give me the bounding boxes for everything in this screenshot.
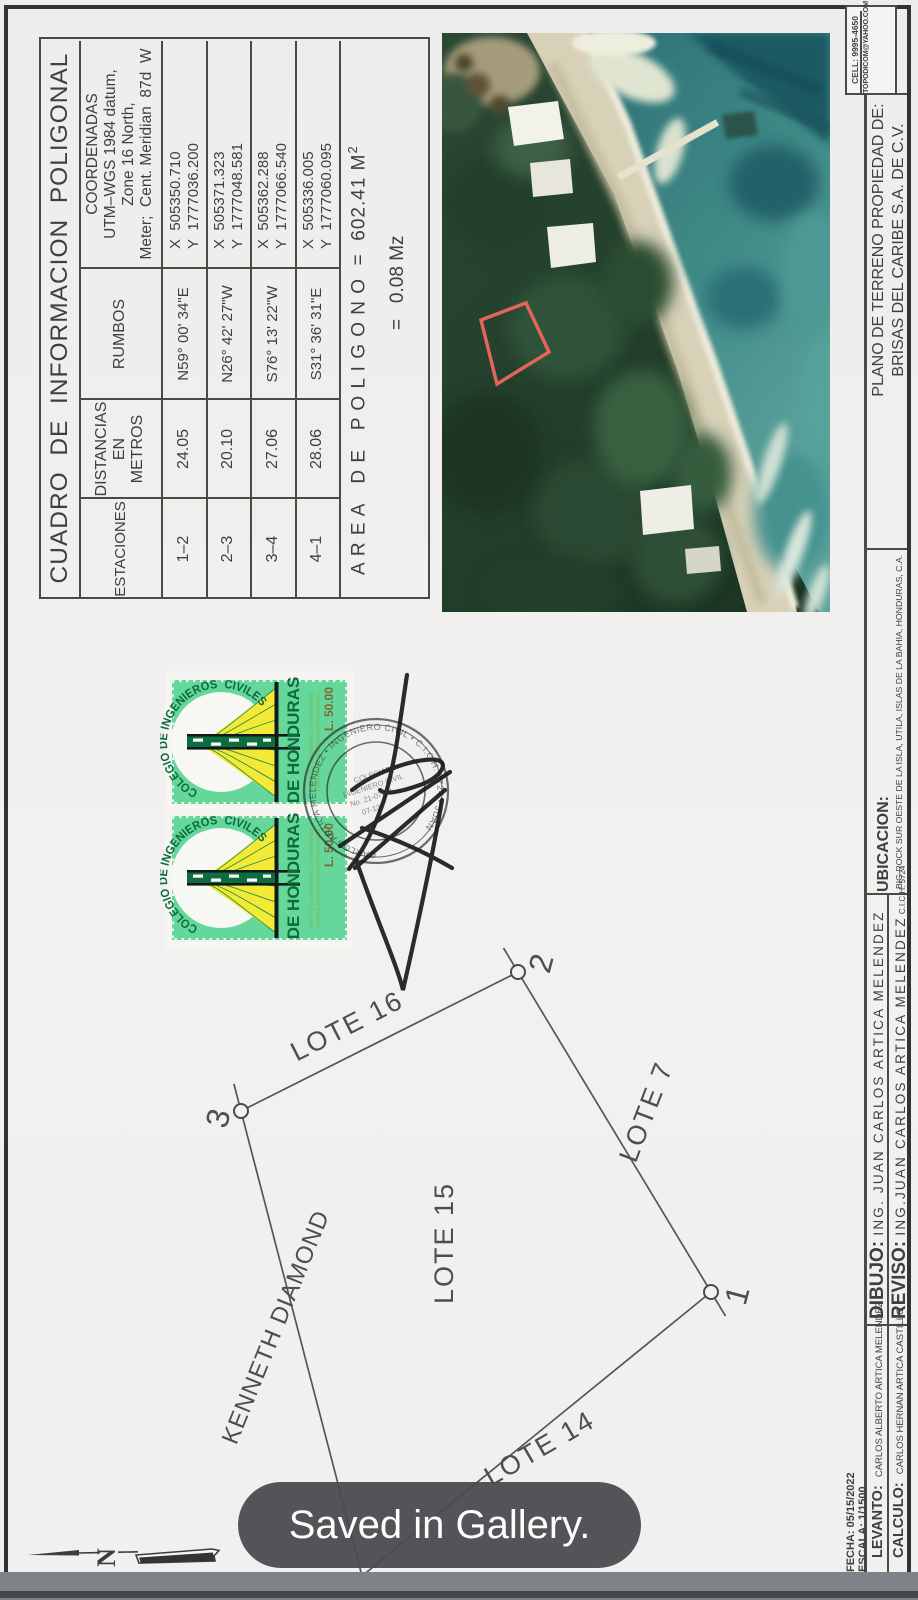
svg-text:N: N [92,1548,121,1567]
svg-text:LOTE 16: LOTE 16 [286,985,408,1067]
svg-text:LOTE 7: LOTE 7 [613,1057,679,1166]
svg-text:3: 3 [198,1105,237,1132]
svg-text:2: 2 [521,950,560,977]
svg-text:LOTE 14: LOTE 14 [479,1405,600,1492]
svg-text:1: 1 [717,1282,756,1309]
svg-text:LOTE 15: LOTE 15 [429,1182,459,1304]
